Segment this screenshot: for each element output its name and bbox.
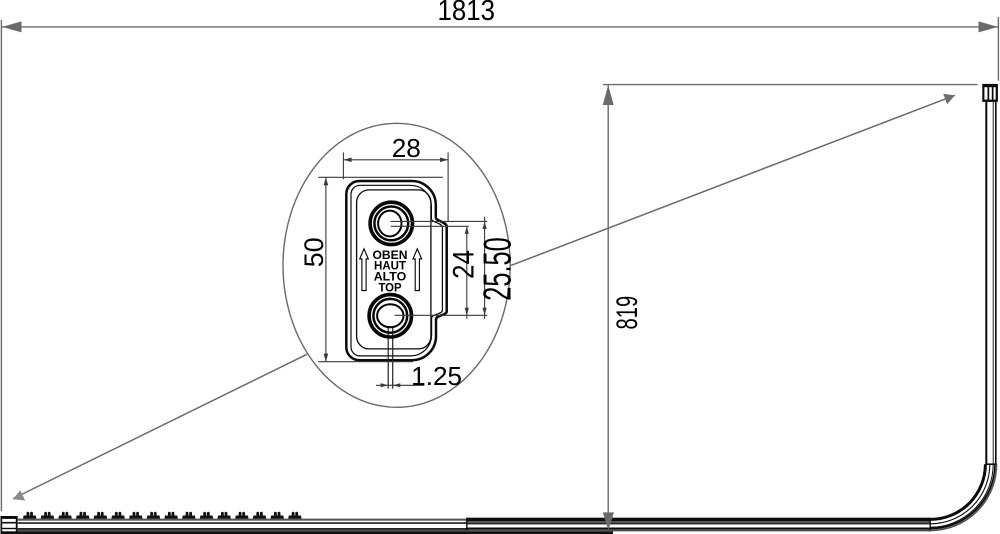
svg-text:819: 819 (611, 296, 644, 330)
svg-text:TOP: TOP (378, 281, 401, 294)
svg-text:1813: 1813 (438, 0, 496, 27)
svg-text:25.50: 25.50 (477, 237, 520, 301)
svg-text:50: 50 (299, 237, 329, 267)
svg-text:28: 28 (392, 133, 421, 163)
svg-text:1.25: 1.25 (411, 361, 462, 391)
svg-text:24: 24 (447, 250, 480, 279)
